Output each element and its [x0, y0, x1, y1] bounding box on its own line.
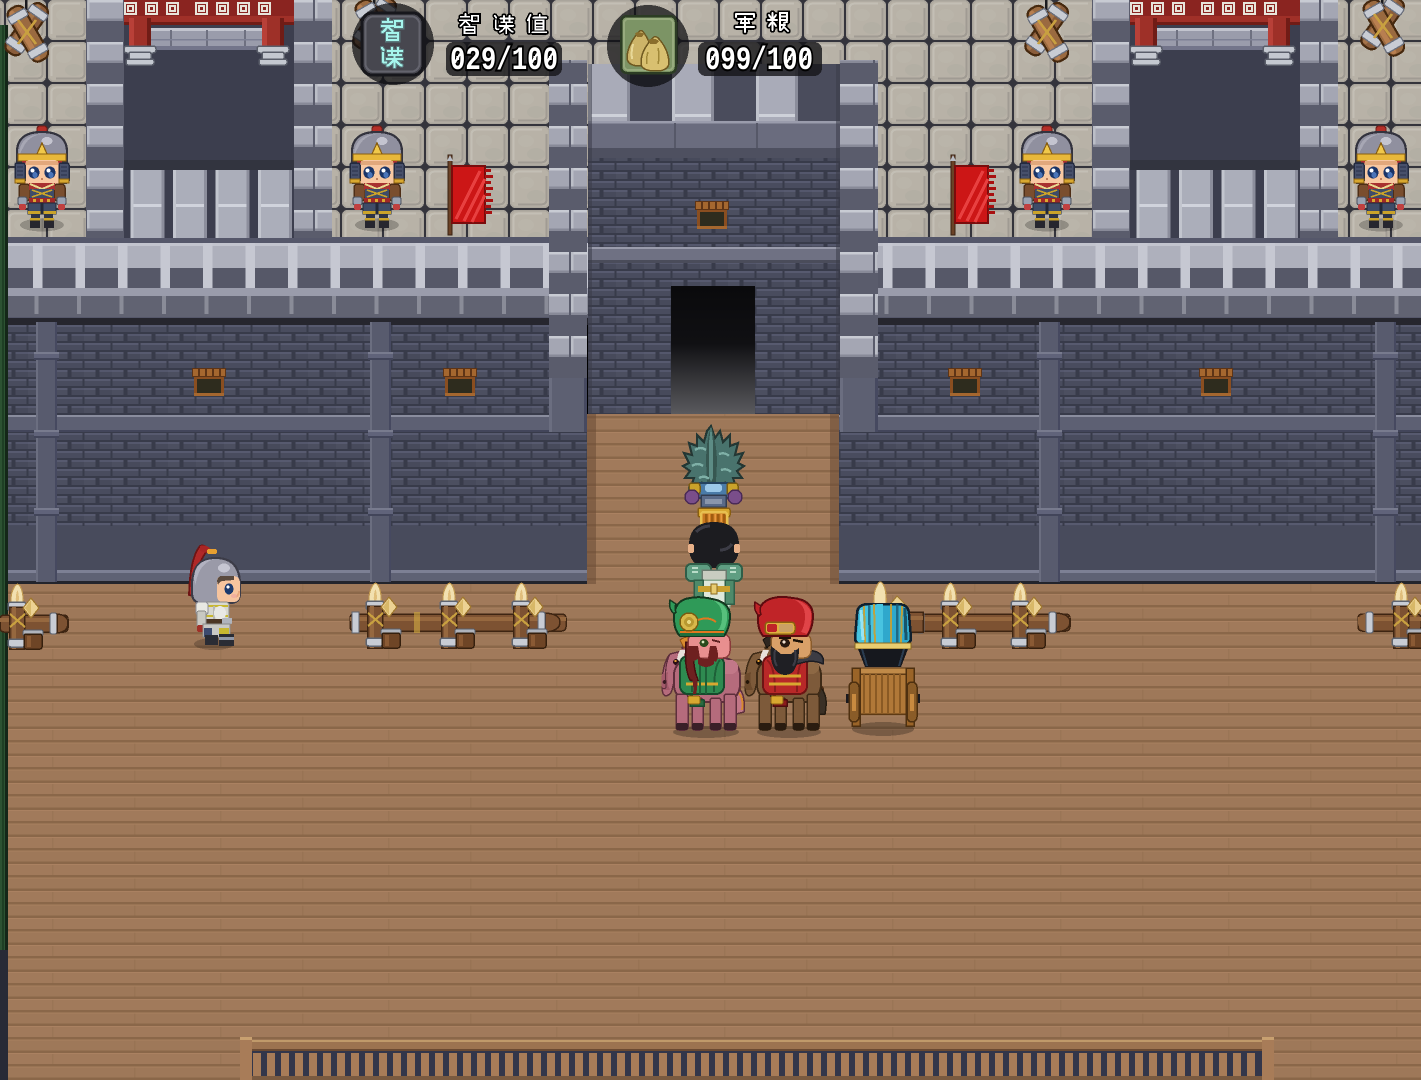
- svg-text:099/100: 099/100: [705, 42, 813, 79]
- svg-text:029/100: 029/100: [450, 42, 558, 79]
